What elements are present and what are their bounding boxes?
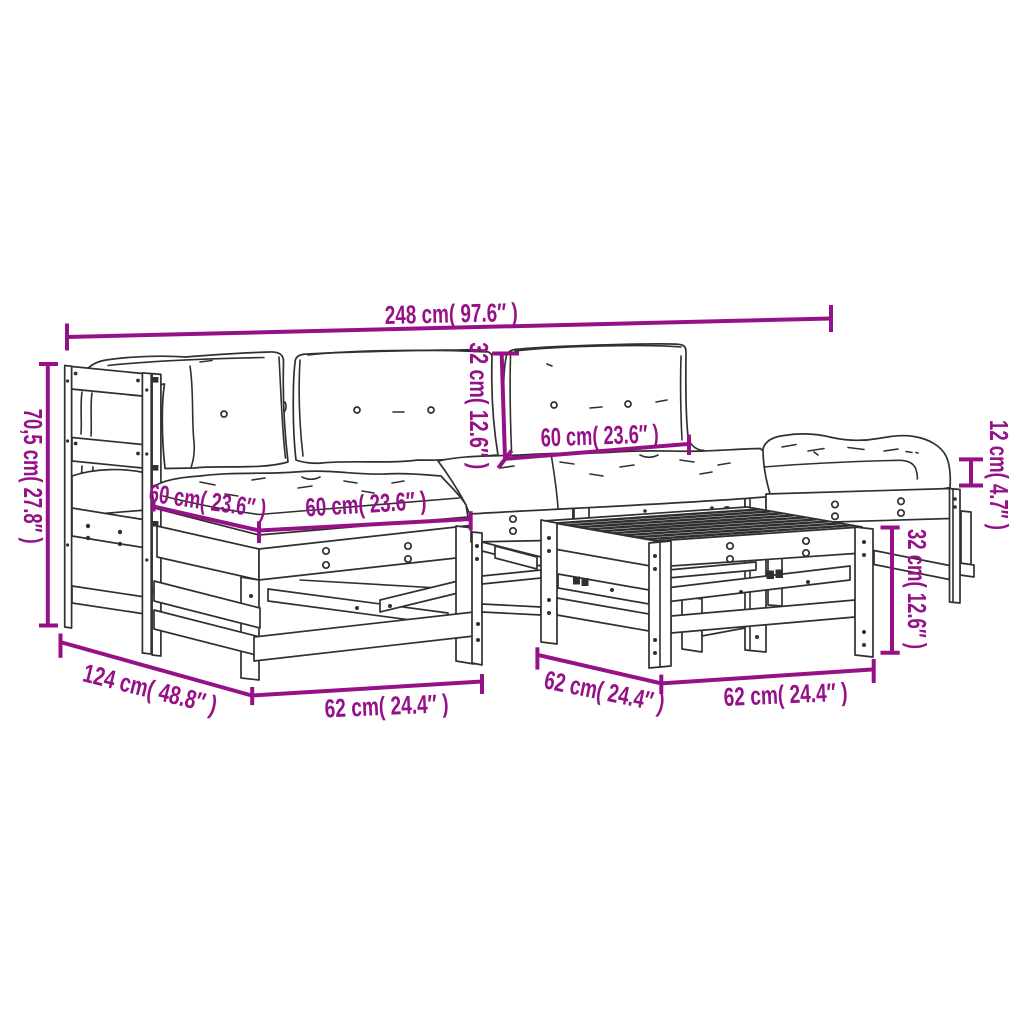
svg-text:60 cm( 23.6″ ): 60 cm( 23.6″ ) (540, 418, 659, 452)
svg-text:70,5 cm( 27.8″ ): 70,5 cm( 27.8″ ) (18, 409, 48, 544)
svg-text:32 cm( 12.6″ ): 32 cm( 12.6″ ) (902, 529, 932, 649)
svg-text:62 cm( 24.4″ ): 62 cm( 24.4″ ) (324, 688, 449, 723)
svg-text:62 cm( 24.4″ ): 62 cm( 24.4″ ) (723, 677, 848, 712)
svg-text:12 cm( 4.7″ ): 12 cm( 4.7″ ) (984, 420, 1014, 530)
svg-text:32 cm( 12.6″ ): 32 cm( 12.6″ ) (464, 342, 494, 469)
svg-text:248 cm( 97.6″ ): 248 cm( 97.6″ ) (384, 297, 518, 330)
